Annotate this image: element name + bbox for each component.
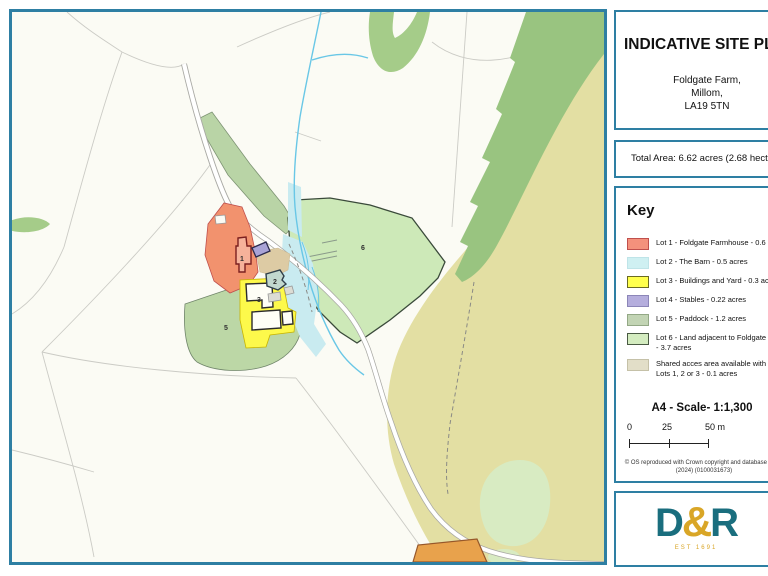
legend-list: Lot 1 - Foldgate Farmhouse - 0.6 acres L… — [627, 238, 768, 378]
logo-letter-r: R — [710, 501, 737, 545]
legend-item-lot2: Lot 2 - The Barn - 0.5 acres — [627, 257, 768, 269]
logo-box: D&R EST 1691 — [614, 491, 768, 567]
page-title: INDICATIVE SITE PLAN — [624, 36, 768, 54]
legend-label-lot6-line2: - 3.7 acres — [656, 343, 768, 353]
map-canvas: 1 2 3 5 6 — [12, 12, 604, 562]
property-address: Foldgate Farm, Millom, LA19 5TN — [616, 74, 768, 113]
legend-label-lot4: Lot 4 - Stables - 0.22 acres — [656, 295, 746, 305]
small-outbuilding — [215, 215, 226, 224]
legend-item-lot6: Lot 6 - Land adjacent to Foldgate Farm -… — [627, 333, 768, 352]
logo-ampersand: & — [682, 498, 710, 545]
os-copyright: © OS reproduced with Crown copyright and… — [616, 460, 768, 475]
total-area-box: Total Area: 6.62 acres (2.68 hectares) — [614, 140, 768, 178]
lot2-swatch — [627, 257, 649, 269]
agency-logo: D&R EST 1691 — [630, 501, 762, 551]
legend-label-shared-line2: Lots 1, 2 or 3 - 0.1 acres — [656, 369, 766, 379]
legend-label-lot2: Lot 2 - The Barn - 0.5 acres — [656, 257, 748, 267]
lot1-label: 1 — [240, 256, 244, 263]
lot5-swatch — [627, 314, 649, 326]
logo-wordmark: D&R — [630, 501, 762, 544]
lot6-label: 6 — [361, 245, 365, 252]
logo-letter-d: D — [655, 501, 682, 545]
legend-item-shared: Shared acces area available with Lots 1,… — [627, 359, 768, 378]
logo-established-text: EST 1691 — [630, 545, 762, 551]
legend-label-lot5: Lot 5 - Paddock - 1.2 acres — [656, 314, 746, 324]
legend-item-lot3: Lot 3 - Buildings and Yard - 0.3 acres — [627, 276, 768, 288]
scale-tick-25: 25 — [662, 422, 672, 432]
scale-bar — [629, 439, 709, 448]
lot5-label: 5 — [224, 325, 228, 332]
scale-bar-tick-end — [708, 439, 709, 448]
address-line-1: Foldgate Farm, — [616, 74, 768, 87]
address-line-3: LA19 5TN — [616, 100, 768, 113]
key-box: Key Lot 1 - Foldgate Farmhouse - 0.6 acr… — [614, 186, 768, 483]
legend-label-lot3: Lot 3 - Buildings and Yard - 0.3 acres — [656, 276, 768, 286]
lot6-swatch — [627, 333, 649, 345]
lot2-label: 2 — [273, 279, 277, 286]
address-line-2: Millom, — [616, 87, 768, 100]
total-area-text: Total Area: 6.62 acres (2.68 hectares) — [631, 142, 768, 176]
lot3-swatch — [627, 276, 649, 288]
lot4-swatch — [627, 295, 649, 307]
key-heading: Key — [627, 202, 655, 219]
lot3-label: 3 — [257, 297, 261, 304]
legend-item-lot5: Lot 5 - Paddock - 1.2 acres — [627, 314, 768, 326]
title-box: INDICATIVE SITE PLAN Foldgate Farm, Mill… — [614, 10, 768, 130]
scale-title: A4 - Scale- 1:1,300 — [616, 402, 768, 414]
legend-item-lot4: Lot 4 - Stables - 0.22 acres — [627, 295, 768, 307]
shared-swatch — [627, 359, 649, 371]
scale-bar-tick-start — [629, 439, 630, 448]
legend-label-lot1: Lot 1 - Foldgate Farmhouse - 0.6 acres — [656, 238, 768, 248]
lot1-swatch — [627, 238, 649, 250]
os-copyright-line2: (2024) (0100031673) — [616, 468, 768, 476]
legend-item-lot1: Lot 1 - Foldgate Farmhouse - 0.6 acres — [627, 238, 768, 250]
legend-label-lot6: Lot 6 - Land adjacent to Foldgate Farm — [656, 333, 768, 343]
scale-tick-50: 50 m — [705, 422, 725, 432]
scale-tick-0: 0 — [627, 422, 632, 432]
legend-label-shared: Shared acces area available with — [656, 359, 766, 369]
site-plan-page: { "panel": { "title": "INDICATIVE SITE P… — [0, 0, 768, 576]
scale-bar-tick-mid — [669, 439, 670, 448]
site-plan-map: 1 2 3 5 6 — [9, 9, 607, 565]
os-copyright-line1: © OS reproduced with Crown copyright and… — [616, 460, 768, 468]
